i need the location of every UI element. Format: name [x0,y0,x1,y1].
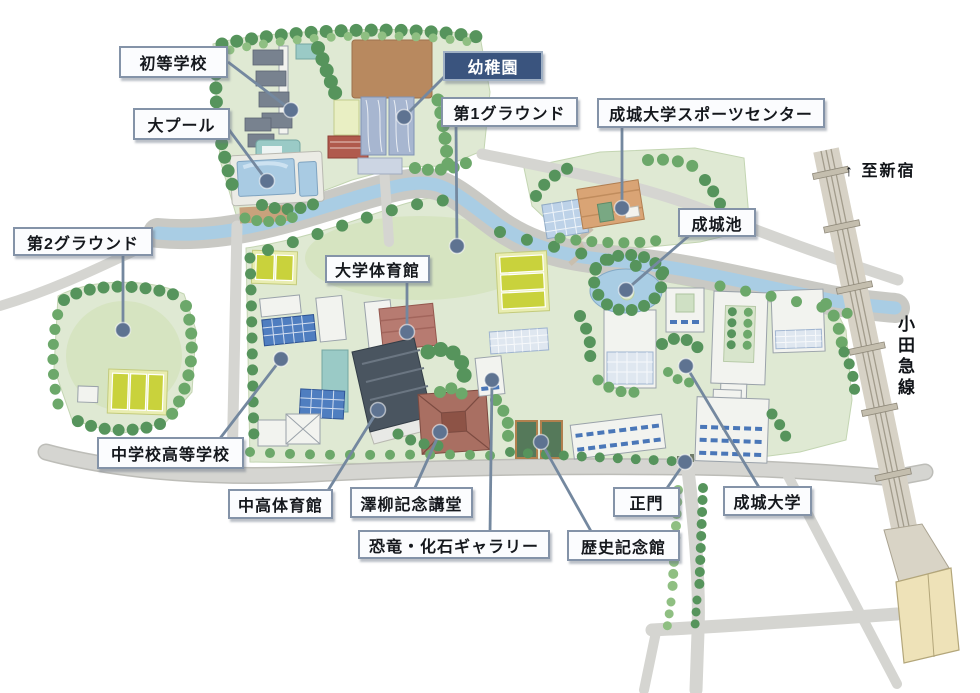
seijogakuen-mae-station [896,568,959,663]
map-note-to-shinjuku: ↑ 至新宿 [845,157,915,181]
map-label-univ-gym[interactable]: 大学体育館 [325,255,430,283]
map-label-main-pool[interactable]: 大プール [133,108,230,140]
solar-hall [489,328,548,354]
seijo-university-main [695,389,769,463]
map-label-junior-senior-high[interactable]: 中学校高等学校 [97,437,244,469]
map-label-sawayanagi-hall[interactable]: 澤柳記念講堂 [350,487,473,518]
map-label-ground-1[interactable]: 第1グラウンド [441,97,578,127]
tennis-courts-river [251,250,297,285]
map-note-odakyu-line: 小田急線 [892,315,917,399]
map-label-main-gate[interactable]: 正門 [613,487,680,517]
map-label-ground-2[interactable]: 第2グラウンド [13,227,153,256]
tennis-courts-center [495,251,549,314]
map-label-history-hall[interactable]: 歴史記念館 [567,530,680,561]
map-label-kindergarten[interactable]: 幼稚園 [443,51,543,81]
campus-map: 初等学校幼稚園大プール第1グラウンド成城大学スポーツセンター成城池第2グラウンド… [0,0,980,693]
map-label-elementary-school[interactable]: 初等学校 [119,46,228,78]
dino-gallery-building [475,356,505,397]
map-label-jshs-gym[interactable]: 中高体育館 [228,489,333,519]
dirt-field [352,40,432,98]
map-label-dino-fossil-gallery[interactable]: 恐竜・化石ギャラリー [358,530,550,559]
map-label-sports-center[interactable]: 成城大学スポーツセンター [597,98,825,128]
map-label-seijo-pond[interactable]: 成城池 [678,208,756,237]
map-label-seijo-university[interactable]: 成城大学 [723,486,812,516]
